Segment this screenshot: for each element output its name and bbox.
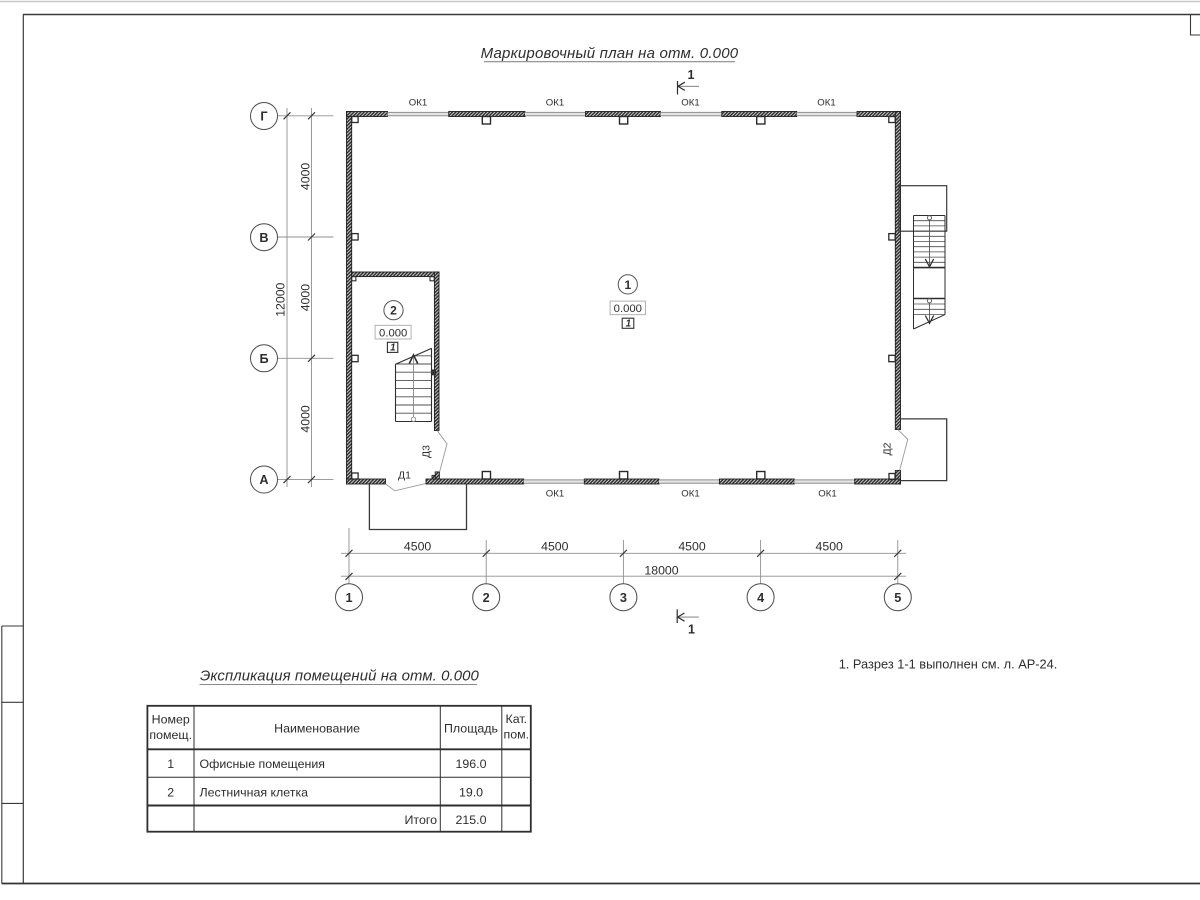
svg-text:Д1: Д1: [398, 470, 411, 482]
svg-text:4000: 4000: [299, 405, 313, 433]
svg-text:Б: Б: [259, 352, 268, 366]
svg-text:1: 1: [626, 319, 631, 330]
svg-text:1. Разрез 1-1 выполнен см. л.: 1. Разрез 1-1 выполнен см. л. АР-24.: [839, 657, 1058, 672]
svg-text:В: В: [259, 231, 268, 245]
svg-text:1: 1: [390, 343, 395, 354]
svg-text:Площадь: Площадь: [444, 722, 498, 736]
svg-text:А: А: [259, 473, 268, 487]
svg-text:4: 4: [757, 591, 764, 605]
svg-text:4500: 4500: [541, 540, 569, 554]
svg-text:Д3: Д3: [421, 445, 433, 458]
svg-text:Наименование: Наименование: [274, 722, 360, 736]
svg-text:215.0: 215.0: [455, 813, 486, 827]
svg-text:5: 5: [894, 591, 901, 605]
svg-text:ОК1: ОК1: [546, 98, 564, 109]
svg-text:Лестничная клетка: Лестничная клетка: [200, 785, 309, 799]
svg-text:Офисные помещения: Офисные помещения: [200, 757, 325, 771]
svg-text:1: 1: [167, 757, 174, 771]
svg-text:ОК1: ОК1: [817, 98, 835, 109]
svg-text:Номер: Номер: [152, 712, 190, 726]
svg-text:18000: 18000: [644, 563, 678, 577]
svg-text:4000: 4000: [299, 163, 313, 191]
svg-text:1: 1: [688, 68, 695, 82]
svg-text:1: 1: [624, 278, 631, 292]
svg-text:ОК1: ОК1: [681, 98, 699, 109]
svg-text:Д2: Д2: [882, 442, 894, 455]
svg-text:0.000: 0.000: [379, 327, 407, 339]
svg-text:Экспликация помещений на отм.: Экспликация помещений на отм. 0.000: [200, 669, 480, 685]
svg-text:Итого: Итого: [405, 813, 438, 827]
svg-text:0.000: 0.000: [614, 303, 642, 315]
svg-text:4500: 4500: [678, 540, 706, 554]
svg-text:2: 2: [483, 591, 490, 605]
svg-text:ОК1: ОК1: [409, 98, 427, 109]
svg-text:4500: 4500: [404, 540, 432, 554]
svg-text:4000: 4000: [299, 284, 313, 312]
svg-text:2: 2: [390, 304, 397, 318]
svg-text:пом.: пом.: [504, 728, 530, 742]
svg-text:12000: 12000: [274, 282, 288, 316]
svg-text:2: 2: [167, 785, 174, 799]
svg-text:196.0: 196.0: [455, 757, 486, 771]
svg-text:Г: Г: [260, 110, 267, 124]
svg-text:помещ.: помещ.: [149, 728, 192, 742]
svg-text:ОК1: ОК1: [681, 488, 699, 499]
svg-text:4500: 4500: [816, 540, 844, 554]
svg-text:Маркировочный план на отм. 0.0: Маркировочный план на отм. 0.000: [481, 45, 739, 62]
svg-text:ОК1: ОК1: [546, 488, 564, 499]
svg-text:1: 1: [345, 591, 352, 605]
svg-text:3: 3: [620, 591, 627, 605]
svg-text:19.0: 19.0: [459, 785, 483, 799]
svg-text:Кат.: Кат.: [506, 712, 528, 726]
svg-text:1: 1: [688, 623, 695, 637]
svg-text:ОК1: ОК1: [818, 488, 836, 499]
